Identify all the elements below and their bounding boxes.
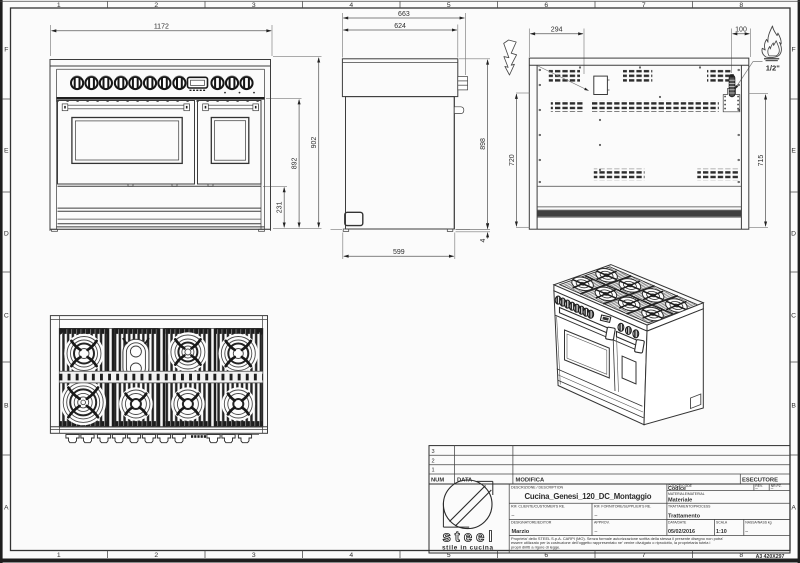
- svg-text:B: B: [791, 402, 796, 409]
- svg-text:2: 2: [154, 552, 158, 559]
- svg-text:3: 3: [252, 2, 256, 9]
- svg-text:1: 1: [432, 468, 435, 474]
- svg-text:–: –: [771, 486, 774, 491]
- svg-text:231: 231: [277, 201, 284, 213]
- svg-text:E: E: [791, 147, 796, 154]
- svg-text:6: 6: [544, 2, 548, 9]
- svg-text:C: C: [791, 312, 796, 319]
- svg-text:NASSA/NASS kg: NASSA/NASS kg: [745, 521, 771, 525]
- svg-text:1/2": 1/2": [766, 64, 781, 73]
- svg-text:F: F: [4, 46, 8, 53]
- svg-text:624: 624: [394, 23, 406, 30]
- svg-text:–: –: [595, 513, 598, 519]
- svg-text:720: 720: [509, 154, 516, 166]
- svg-text:100: 100: [735, 27, 747, 34]
- svg-text:Trattamento: Trattamento: [668, 514, 701, 520]
- svg-text:599: 599: [393, 249, 405, 256]
- svg-text:715: 715: [758, 155, 765, 167]
- svg-text:C: C: [4, 312, 9, 319]
- svg-text:TRATTAMENTO/PROCESS: TRATTAMENTO/PROCESS: [668, 505, 711, 509]
- svg-text:–: –: [595, 529, 598, 535]
- svg-text:D: D: [4, 230, 9, 237]
- svg-text:7: 7: [642, 2, 646, 9]
- svg-text:902: 902: [311, 137, 318, 149]
- svg-text:–: –: [745, 529, 748, 535]
- svg-text:DESCRIZIONE / DESCRIPTION: DESCRIZIONE / DESCRIPTION: [511, 485, 564, 489]
- svg-text:5: 5: [447, 2, 451, 9]
- svg-text:A: A: [4, 504, 9, 511]
- svg-text:4: 4: [349, 2, 353, 9]
- svg-text:1: 1: [57, 552, 61, 559]
- svg-text:1172: 1172: [154, 24, 169, 31]
- svg-text:D: D: [791, 230, 796, 237]
- svg-text:SCALA: SCALA: [716, 521, 728, 525]
- svg-text:–: –: [755, 486, 758, 491]
- svg-text:NUM: NUM: [431, 478, 444, 484]
- svg-text:3: 3: [252, 552, 256, 559]
- svg-text:1: 1: [57, 2, 61, 9]
- svg-text:A: A: [791, 504, 796, 511]
- svg-text:E: E: [4, 147, 9, 154]
- svg-text:B: B: [4, 402, 9, 409]
- svg-text:DATA/DATE: DATA/DATE: [668, 521, 687, 525]
- svg-text:3: 3: [432, 449, 435, 455]
- svg-text:Marzio: Marzio: [512, 529, 530, 535]
- svg-text:–: –: [512, 513, 515, 519]
- svg-text:DESIGNATORE/EDITOR: DESIGNATORE/EDITOR: [511, 521, 552, 525]
- svg-text:MODIFICA: MODIFICA: [516, 478, 545, 484]
- svg-text:RIF. CLIENTE/CUSTOMER'S RE.: RIF. CLIENTE/CUSTOMER'S RE.: [511, 505, 565, 509]
- svg-text:2: 2: [432, 458, 435, 464]
- svg-text:4: 4: [480, 238, 487, 242]
- svg-text:Materiale: Materiale: [668, 498, 692, 504]
- svg-text:05/02/2016: 05/02/2016: [668, 529, 695, 535]
- svg-text:stile in cucina: stile in cucina: [442, 545, 493, 552]
- svg-text:propri diritti a rigore di leg: propri diritti a rigore di legge.: [511, 544, 560, 549]
- svg-text:RIF. FORNITORE/SUPPLIER'S RE.: RIF. FORNITORE/SUPPLIER'S RE.: [594, 505, 651, 509]
- svg-text:294: 294: [551, 27, 563, 34]
- svg-text:4: 4: [349, 552, 353, 559]
- svg-text:1:10: 1:10: [716, 529, 727, 535]
- svg-text:892: 892: [292, 158, 299, 170]
- svg-text:Cucina_Genesi_120_DC_Montaggio: Cucina_Genesi_120_DC_Montaggio: [525, 492, 652, 501]
- svg-text:2: 2: [154, 2, 158, 9]
- svg-text:8: 8: [739, 2, 743, 9]
- svg-text:MATERIALE/MATERIAL: MATERIALE/MATERIAL: [668, 492, 705, 496]
- svg-text:898: 898: [480, 138, 487, 150]
- svg-text:ESECUTORE: ESECUTORE: [742, 478, 778, 484]
- svg-text:F: F: [792, 46, 796, 53]
- svg-text:APPROV.: APPROV.: [594, 521, 610, 525]
- svg-text:663: 663: [398, 11, 410, 18]
- svg-text:A3 420X297: A3 420X297: [756, 554, 785, 560]
